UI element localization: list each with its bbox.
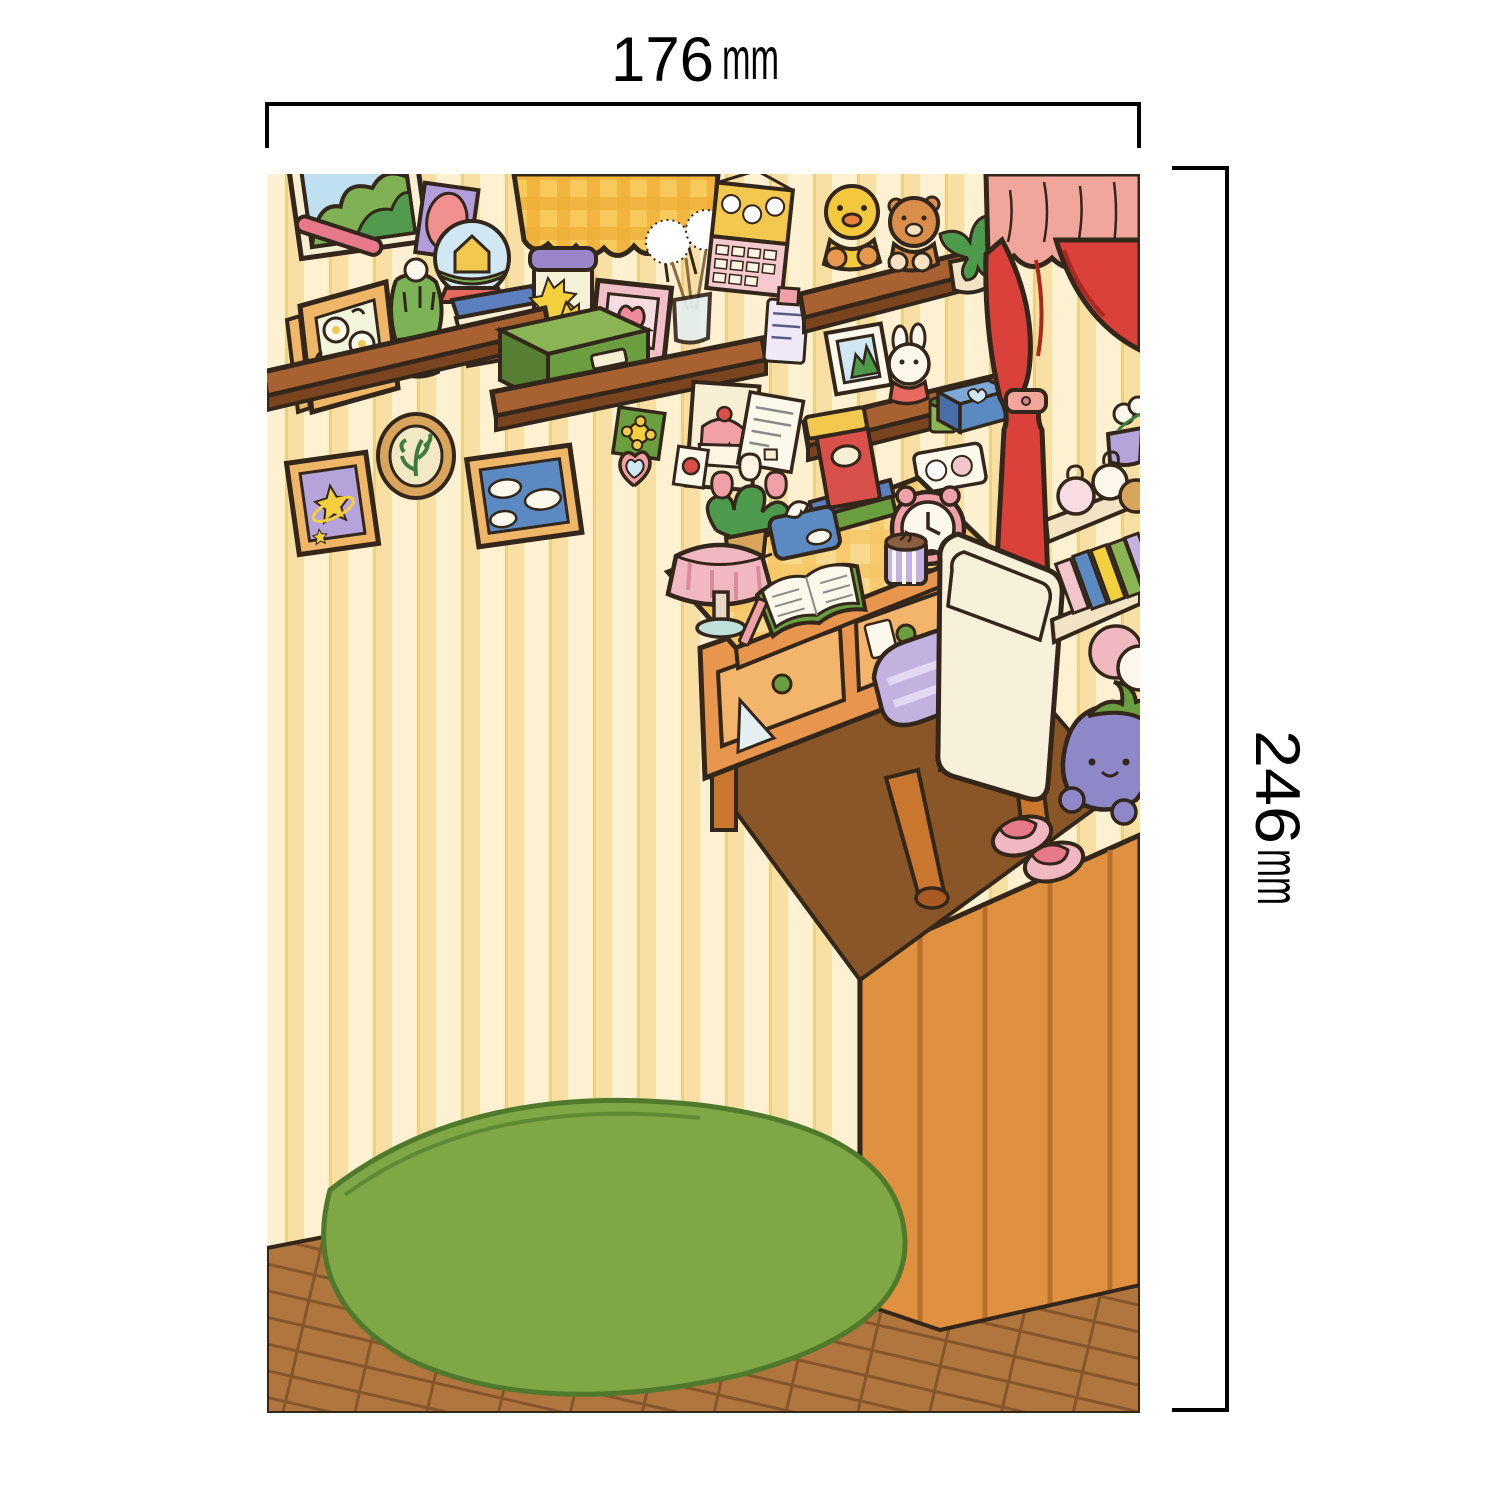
svg-text:176: 176	[611, 25, 714, 95]
svg-text:mm: mm	[722, 26, 779, 92]
svg-text:mm: mm	[1245, 849, 1311, 905]
svg-text:246: 246	[1242, 730, 1312, 844]
